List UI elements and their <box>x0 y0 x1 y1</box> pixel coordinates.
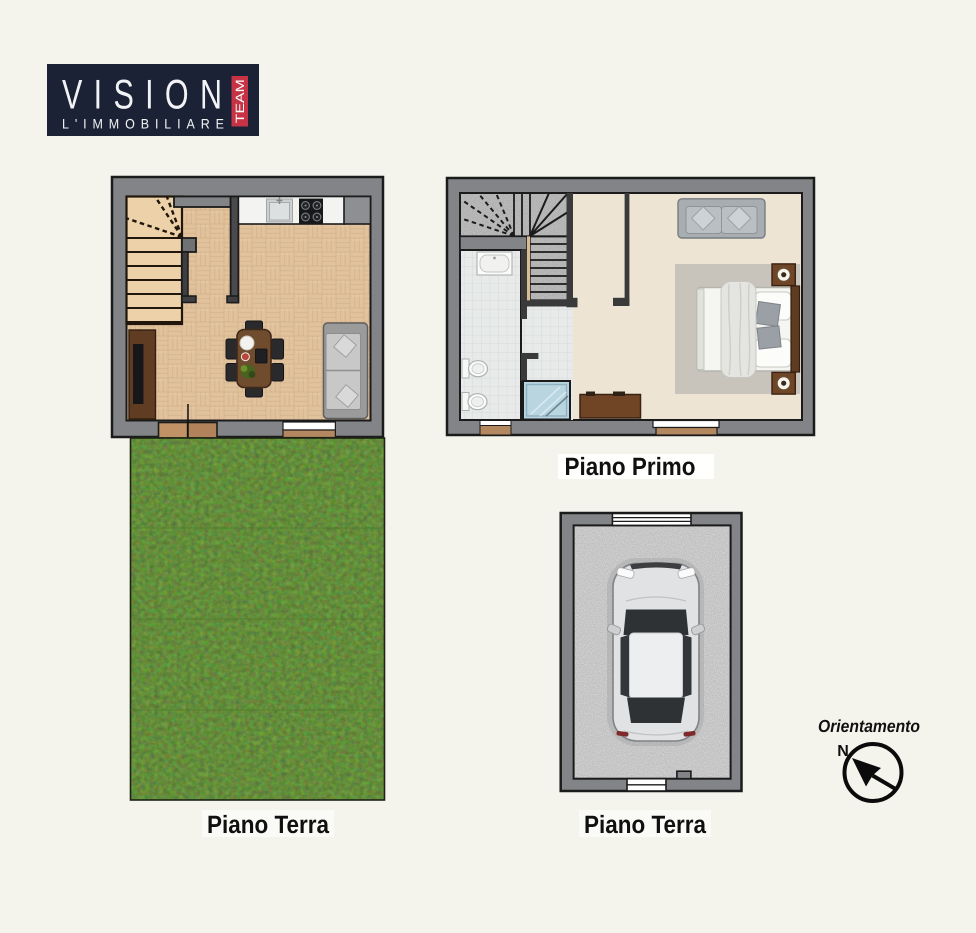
svg-text:Orientamento: Orientamento <box>818 716 920 736</box>
svg-text:Piano Terra: Piano Terra <box>207 811 330 839</box>
svg-text:Piano Terra: Piano Terra <box>584 811 707 839</box>
svg-text:TEAM: TEAM <box>233 79 247 123</box>
svg-text:Piano Primo: Piano Primo <box>565 453 696 481</box>
